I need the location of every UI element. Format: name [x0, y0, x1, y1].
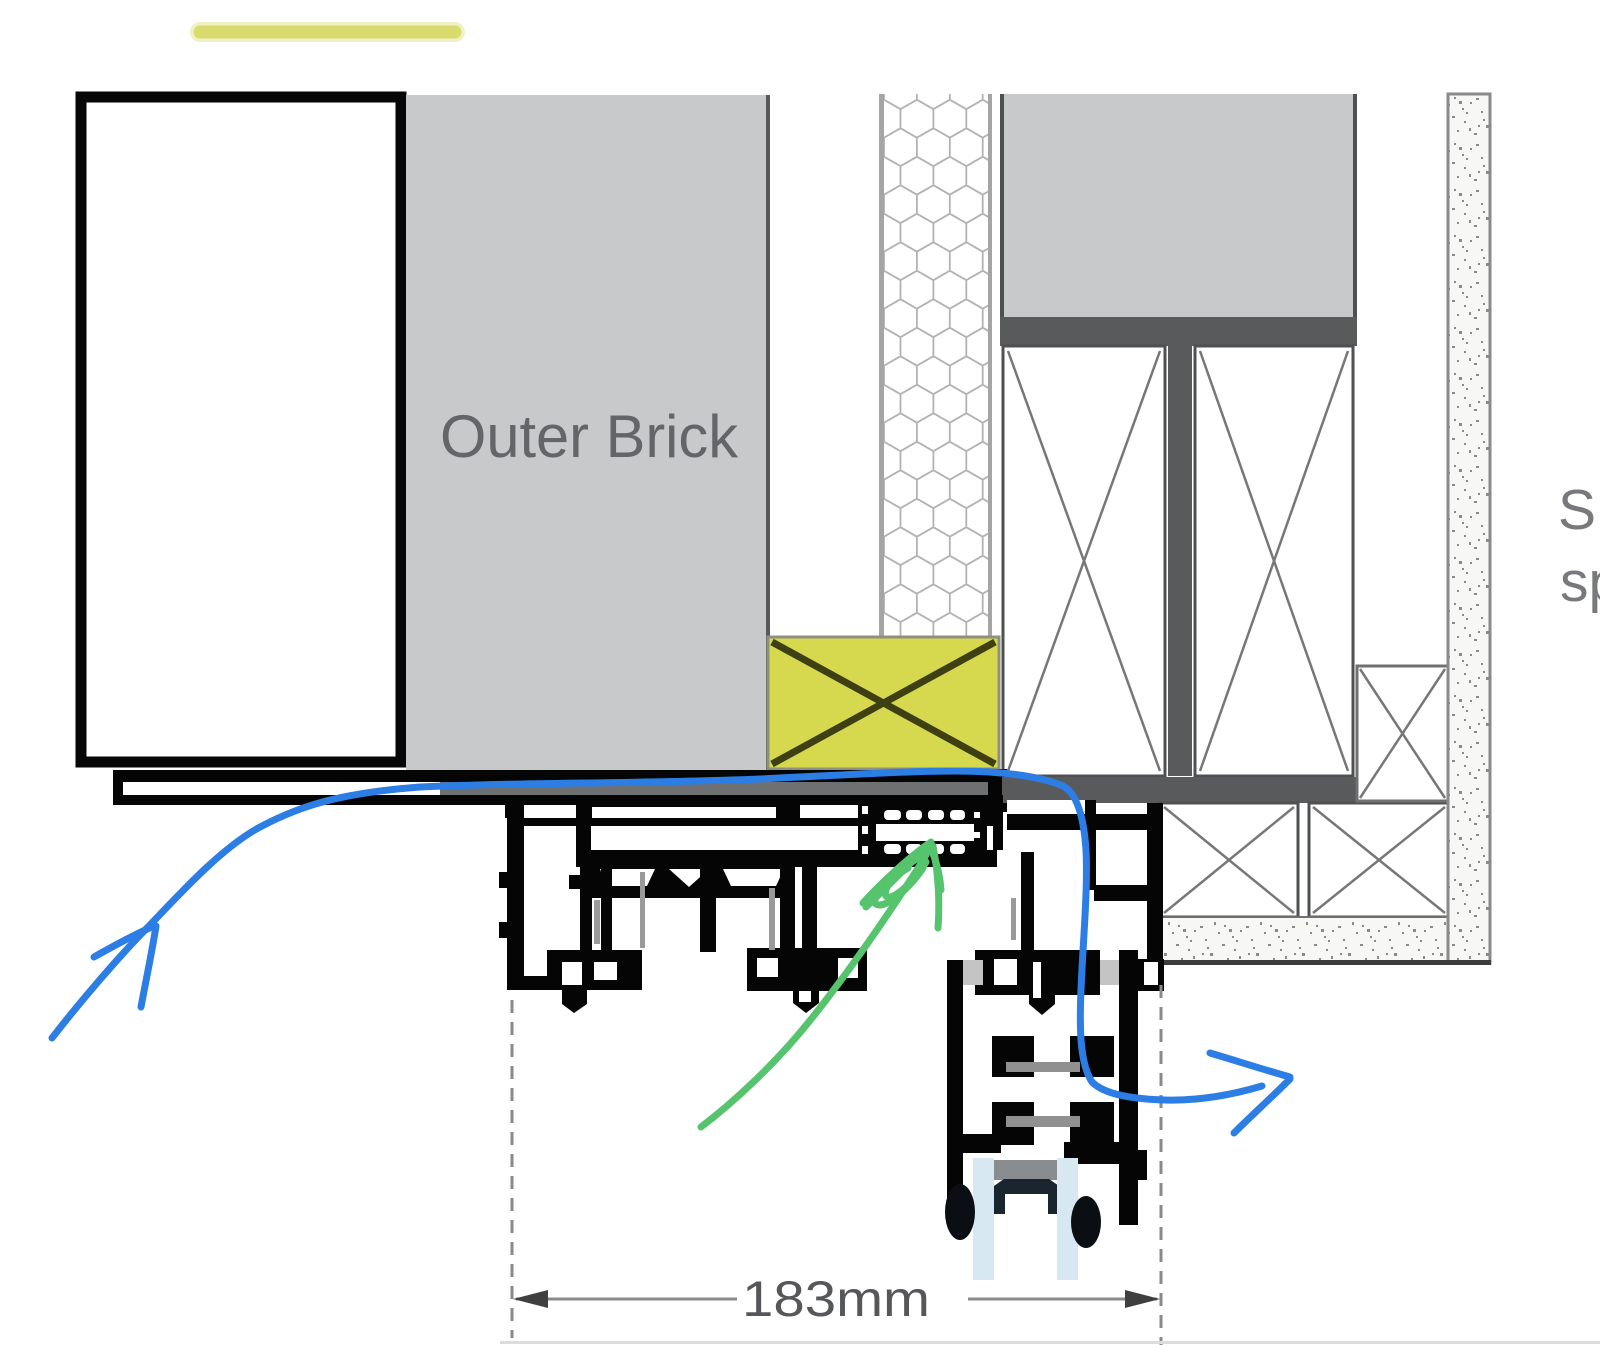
svg-text:183mm: 183mm: [742, 1271, 930, 1327]
svg-text:Outer Brick: Outer Brick: [440, 403, 739, 470]
svg-text:sp: sp: [1560, 550, 1600, 614]
svg-text:S: S: [1558, 478, 1596, 542]
